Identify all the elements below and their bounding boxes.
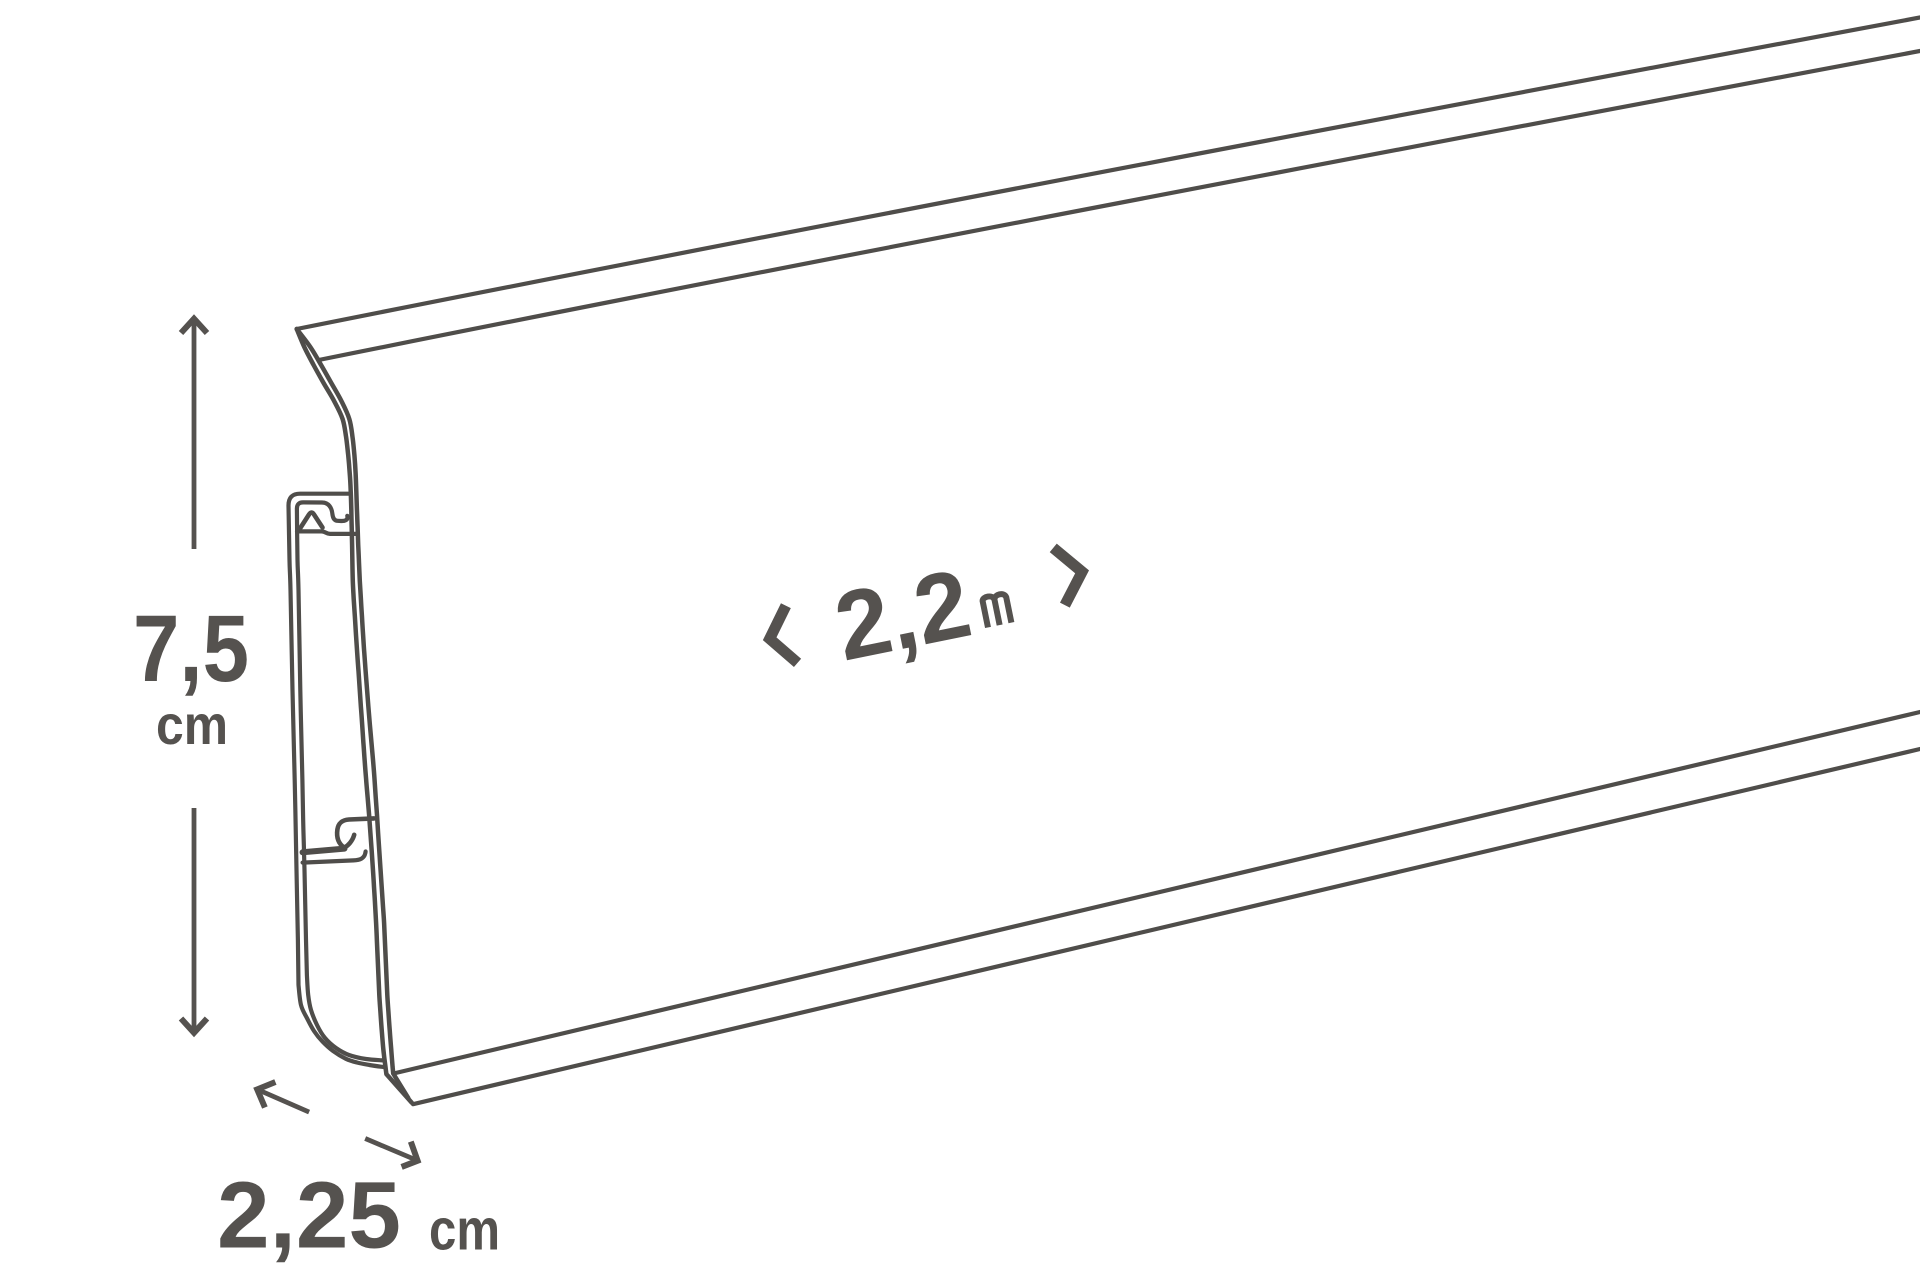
svg-text:7,5: 7,5 bbox=[133, 596, 249, 702]
svg-text:cm: cm bbox=[429, 1198, 500, 1263]
svg-text:cm: cm bbox=[156, 693, 228, 756]
svg-text:2,25: 2,25 bbox=[217, 1163, 401, 1269]
